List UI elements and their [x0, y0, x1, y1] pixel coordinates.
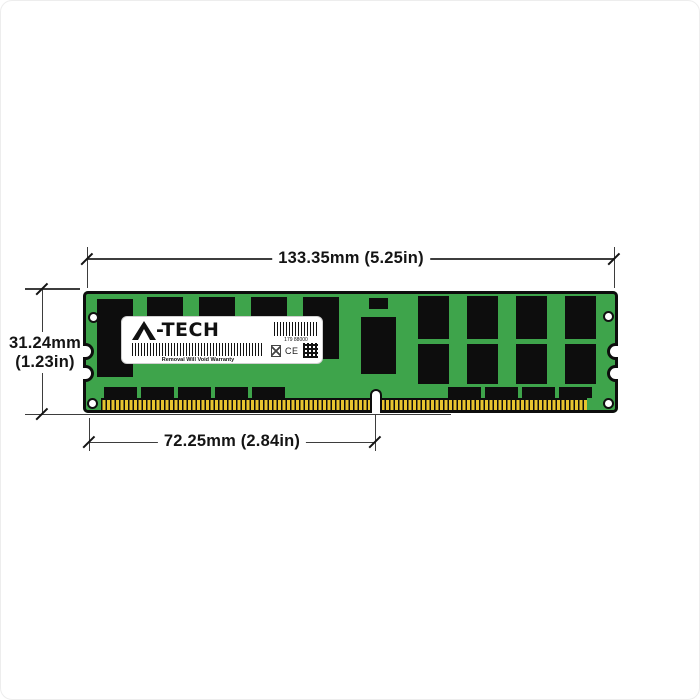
qr-code-icon	[303, 343, 318, 358]
key-notch	[370, 389, 382, 413]
ce-mark: CE	[285, 346, 299, 357]
edge-notch	[607, 343, 618, 360]
dimension-label-height-mm: 31.24mm	[9, 334, 81, 353]
extension-line-top-right	[614, 247, 616, 288]
mounting-hole	[87, 398, 98, 409]
memory-chip	[104, 387, 137, 398]
dimension-label-key-offset: 72.25mm (2.84in)	[158, 431, 306, 452]
memory-chip	[467, 296, 498, 339]
extension-line-key-notch	[375, 415, 377, 451]
memory-chip	[252, 387, 285, 398]
memory-chip	[559, 387, 592, 398]
dimension-label-height-in: (1.23in)	[9, 353, 81, 372]
logo-triangle-icon	[132, 321, 156, 340]
extension-line-bottom-left	[89, 418, 91, 451]
memory-chip	[418, 344, 449, 384]
mounting-hole	[88, 312, 99, 323]
barcode-icon	[132, 343, 264, 356]
extension-line-left-top	[25, 288, 80, 290]
extension-line-top-left	[87, 247, 89, 288]
dimension-label-width: 133.35mm (5.25in)	[272, 248, 430, 269]
spd-chip	[369, 298, 388, 309]
extension-line-left-bottom	[25, 414, 451, 415]
register-chip	[361, 317, 396, 374]
brand-logo: -TECH	[132, 320, 219, 340]
memory-chip	[448, 387, 481, 398]
edge-notch	[83, 343, 94, 360]
mounting-hole	[603, 398, 614, 409]
diagram-canvas: 133.35mm (5.25in) 31.24mm (1.23in) 72.25…	[0, 0, 700, 700]
brand-logo-text: -TECH	[156, 321, 219, 340]
edge-notch	[83, 365, 94, 382]
pin-row	[101, 398, 587, 410]
memory-chip	[516, 296, 547, 339]
memory-chip	[141, 387, 174, 398]
memory-chip	[516, 344, 547, 384]
memory-chip	[565, 344, 596, 384]
memory-chip	[565, 296, 596, 339]
product-label: -TECH 179 88000 Removal Will Void Warran…	[121, 316, 323, 364]
weee-icon	[271, 345, 281, 357]
memory-chip	[215, 387, 248, 398]
memory-chip	[467, 344, 498, 384]
edge-notch	[607, 365, 618, 382]
mounting-hole	[603, 311, 614, 322]
memory-chip	[485, 387, 518, 398]
memory-chip	[178, 387, 211, 398]
barcode-icon	[274, 322, 318, 336]
memory-chip	[418, 296, 449, 339]
warranty-text: Removal Will Void Warranty	[132, 357, 264, 363]
memory-module-pcb: -TECH 179 88000 Removal Will Void Warran…	[83, 291, 618, 413]
dimension-label-height: 31.24mm (1.23in)	[7, 332, 83, 373]
memory-chip	[522, 387, 555, 398]
